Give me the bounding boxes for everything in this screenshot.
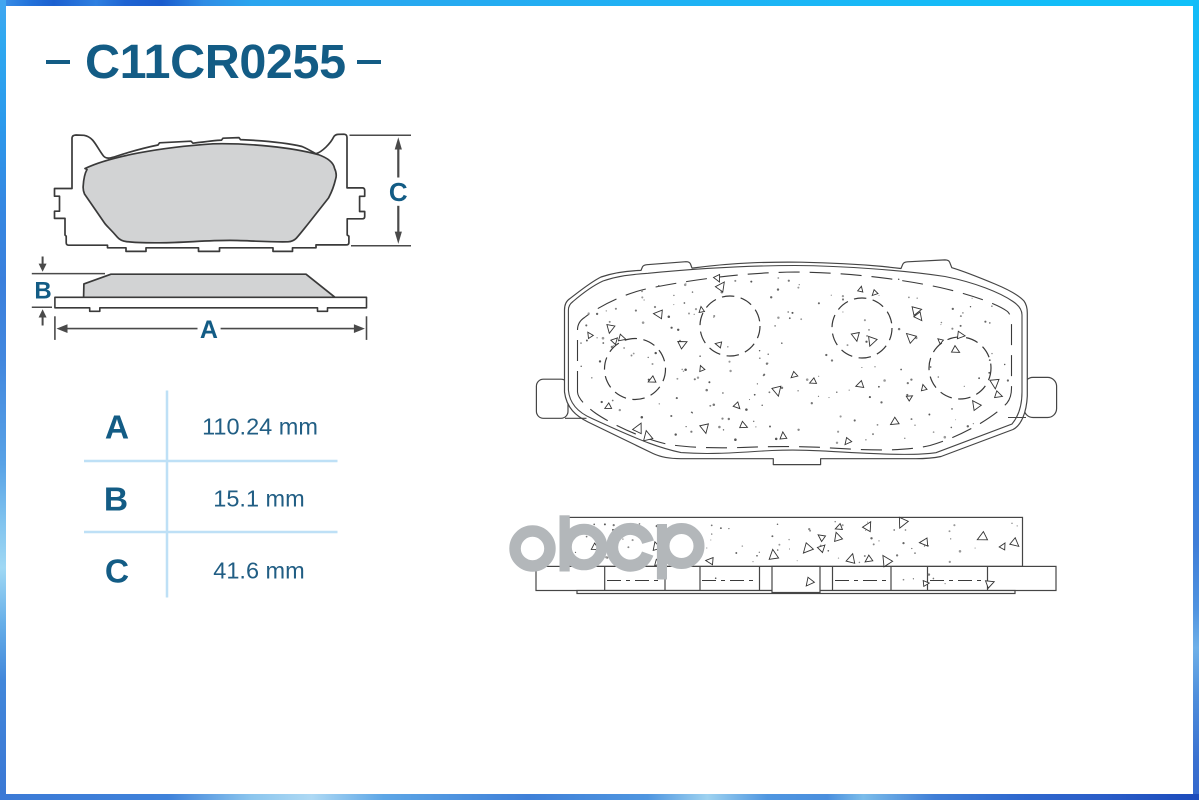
svg-text:B: B xyxy=(34,277,51,304)
svg-text:A: A xyxy=(200,316,218,344)
svg-text:C: C xyxy=(105,554,129,591)
svg-text:110.24 mm: 110.24 mm xyxy=(202,414,318,440)
svg-text:B: B xyxy=(104,482,128,519)
svg-text:41.6 mm: 41.6 mm xyxy=(213,558,304,584)
svg-text:C: C xyxy=(389,177,408,207)
svg-text:15.1 mm: 15.1 mm xyxy=(213,486,304,512)
svg-text:A: A xyxy=(105,410,129,447)
